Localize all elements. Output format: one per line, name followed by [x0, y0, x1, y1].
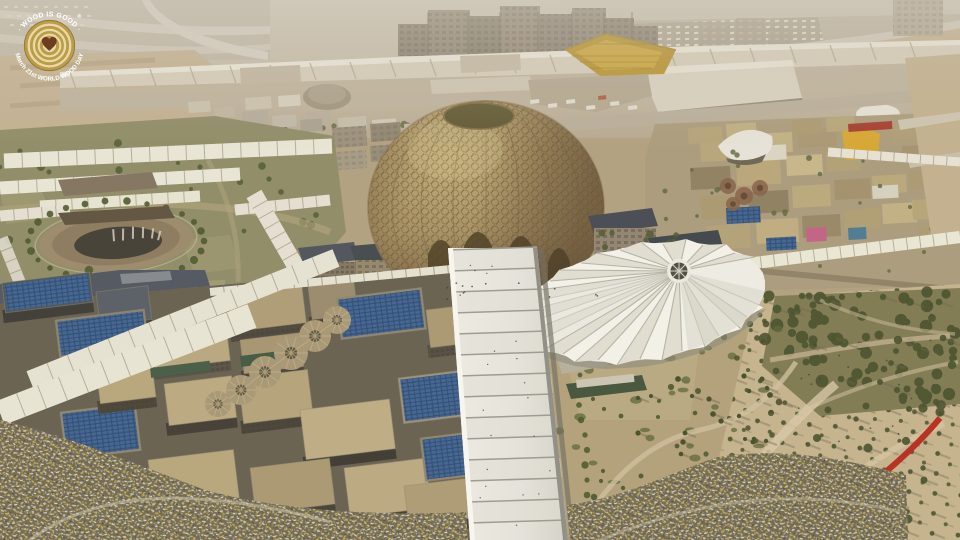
svg-text:®: ® — [78, 13, 82, 20]
